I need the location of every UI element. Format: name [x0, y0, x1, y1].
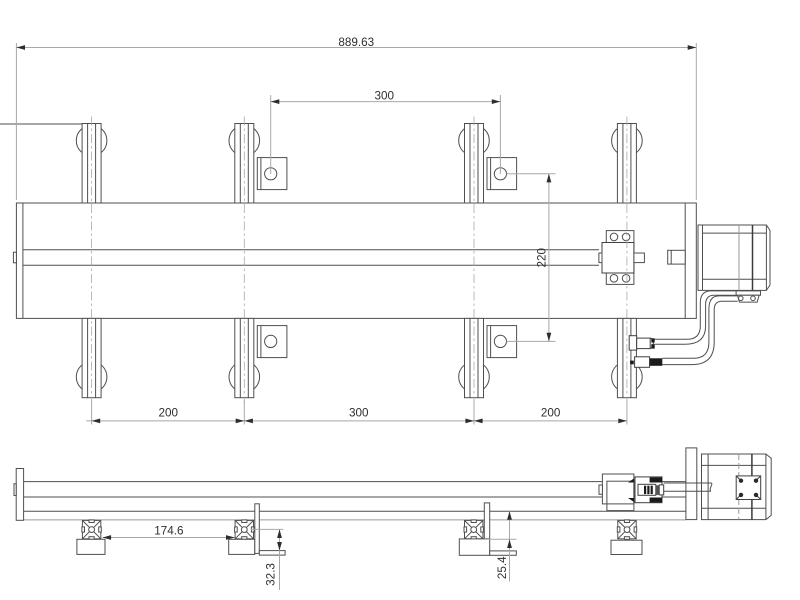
svg-text:200: 200	[541, 407, 561, 420]
svg-text:174.6: 174.6	[154, 525, 183, 538]
svg-text:300: 300	[375, 90, 395, 103]
svg-text:25.4: 25.4	[496, 556, 509, 579]
svg-text:200: 200	[158, 407, 178, 420]
svg-text:32.3: 32.3	[265, 563, 278, 586]
svg-text:300: 300	[349, 407, 369, 420]
svg-text:220: 220	[536, 247, 549, 267]
svg-text:889.63: 889.63	[338, 36, 374, 49]
